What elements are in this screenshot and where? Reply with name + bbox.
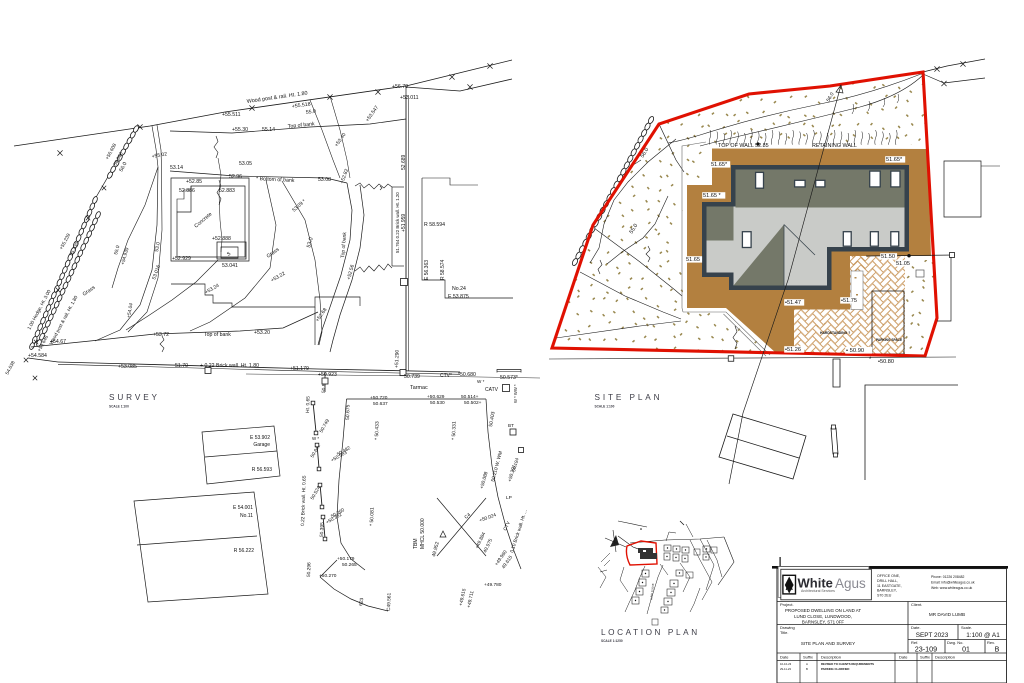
- svg-text:E 54.001: E 54.001: [233, 505, 253, 511]
- svg-text:51.50: 51.50: [881, 254, 895, 260]
- svg-text:+49.615: +49.615: [458, 588, 468, 607]
- svg-text:1:100 @ A1: 1:100 @ A1: [966, 632, 1000, 639]
- svg-text:55.14: 55.14: [262, 127, 275, 133]
- svg-text:52.886: 52.886: [179, 188, 195, 194]
- svg-text:•51.26: •51.26: [785, 347, 801, 353]
- svg-text:MR DAVID LUMB: MR DAVID LUMB: [929, 612, 965, 617]
- svg-text:* 50.081: * 50.081: [369, 507, 376, 526]
- svg-text:+52.56: +52.56: [346, 264, 356, 281]
- svg-text:CTV*: CTV*: [440, 373, 452, 379]
- svg-text:55.0: 55.0: [113, 245, 121, 256]
- svg-text:E 56.363: E 56.363: [424, 260, 430, 280]
- svg-text:11 EASTGATE,: 11 EASTGATE,: [877, 584, 902, 588]
- svg-text:51.65: 51.65: [686, 257, 700, 263]
- svg-text:+50.179: +50.179: [337, 556, 355, 562]
- svg-text:R 58.574: R 58.574: [440, 259, 446, 280]
- svg-text:LOCATION PLAN: LOCATION PLAN: [601, 628, 700, 637]
- svg-text:PARKING SPACE: PARKING SPACE: [876, 338, 902, 342]
- svg-text:REVISED TO CLIENTS REQUIREMENT: REVISED TO CLIENTS REQUIREMENTS: [821, 662, 874, 666]
- svg-text:Title.: Title.: [780, 630, 789, 635]
- svg-text:Grass: Grass: [82, 285, 97, 298]
- svg-text:+55.239: +55.239: [58, 232, 72, 251]
- svg-text:51.05: 51.05: [896, 261, 910, 267]
- svg-text:+55.02: +55.02: [151, 151, 167, 160]
- svg-text:RETAINING WALL: RETAINING WALL: [812, 143, 857, 149]
- svg-text:51.764 0.22 Brick wall. Ht. 1.: 51.764 0.22 Brick wall. Ht. 1.20: [395, 192, 400, 253]
- svg-text:Grass: Grass: [266, 247, 281, 260]
- svg-text:Client.: Client.: [911, 602, 922, 607]
- svg-text:53.08: 53.08: [318, 177, 331, 183]
- svg-text:50.265: 50.265: [342, 562, 357, 568]
- svg-text:+52.68: +52.68: [315, 307, 329, 323]
- svg-text:TBM: TBM: [413, 538, 419, 549]
- svg-text:+53.22: +53.22: [270, 271, 287, 284]
- svg-text:52.689: 52.689: [401, 154, 407, 170]
- svg-text:+50.088: +50.088: [479, 471, 489, 490]
- svg-text:Agus: Agus: [835, 576, 866, 591]
- svg-text:R 58.594: R 58.594: [424, 222, 445, 228]
- svg-text:Suffix: Suffix: [803, 655, 813, 660]
- svg-text:Ht. 0.65: Ht. 0.65: [305, 396, 312, 413]
- svg-text:C49.561: C49.561: [386, 592, 393, 611]
- svg-text:Concrete: Concrete: [193, 211, 213, 229]
- svg-text:•51.75: •51.75: [841, 298, 857, 304]
- svg-text:+54.930: +54.930: [120, 247, 130, 266]
- svg-text:E 53.875: E 53.875: [448, 294, 469, 300]
- svg-text:50.194: 50.194: [511, 457, 520, 472]
- svg-text:49.952: 49.952: [431, 541, 441, 558]
- svg-text:•51.47: •51.47: [785, 300, 801, 306]
- svg-text:LUND CLOSE: LUND CLOSE: [649, 583, 655, 600]
- svg-text:CATV: CATV: [485, 387, 499, 393]
- svg-text:LUND CLOSE, LUNDWOOD,: LUND CLOSE, LUNDWOOD,: [794, 614, 852, 619]
- svg-text:B: B: [806, 667, 808, 671]
- svg-text:* 50.331: * 50.331: [451, 421, 458, 440]
- svg-text:Phone: 01226 208482: Phone: 01226 208482: [931, 575, 964, 579]
- svg-text:R 56.222: R 56.222: [234, 548, 255, 554]
- svg-text:53.14: 53.14: [170, 165, 183, 171]
- svg-text:+53.085: +53.085: [118, 364, 137, 370]
- svg-text:SCALE 1:1250: SCALE 1:1250: [601, 639, 623, 643]
- svg-text:+52.82: +52.82: [339, 168, 350, 185]
- svg-text:Date: Date: [780, 655, 789, 660]
- svg-text:55.0: 55.0: [629, 223, 640, 235]
- svg-text:S70 2EU: S70 2EU: [877, 594, 892, 598]
- svg-text:E 53.902: E 53.902: [250, 435, 270, 441]
- svg-text:+ 0.22 Brick wall. Ht. 1.80: + 0.22 Brick wall. Ht. 1.80: [200, 363, 259, 369]
- svg-text:+51.290: +51.290: [394, 349, 401, 368]
- svg-text:50.530: 50.530: [430, 400, 445, 406]
- svg-text:* Bottom of bank: * Bottom of bank: [256, 176, 295, 184]
- svg-text:W *: W *: [312, 436, 319, 441]
- svg-text:+54.67: +54.67: [50, 339, 66, 345]
- svg-text:50.749: 50.749: [319, 418, 332, 434]
- svg-text:50.739: 50.739: [404, 374, 420, 380]
- svg-text:W *: W *: [477, 379, 485, 384]
- svg-text:+53.547: +53.547: [365, 105, 380, 124]
- svg-text:SCALE 1:100: SCALE 1:100: [109, 405, 129, 409]
- svg-text:LP: LP: [506, 495, 512, 501]
- svg-text:50.514+: 50.514+: [461, 394, 479, 400]
- svg-text:+51.179: +51.179: [290, 366, 309, 372]
- svg-text:51.65 *: 51.65 *: [703, 193, 722, 199]
- svg-text:+50.720: +50.720: [370, 395, 388, 401]
- svg-text:50.675: 50.675: [345, 404, 352, 420]
- svg-text:• 50.90: • 50.90: [846, 348, 864, 354]
- svg-text:52.96: 52.96: [229, 174, 242, 180]
- svg-text:53.016: 53.016: [151, 264, 162, 281]
- svg-text:54.638: 54.638: [4, 360, 16, 376]
- svg-text:53.05: 53.05: [239, 161, 252, 167]
- svg-text:0.22 Brick wall.: 0.22 Brick wall.: [303, 429, 305, 430]
- svg-text:56.0: 56.0: [118, 161, 128, 173]
- svg-text:MHCL 50.000: MHCL 50.000: [420, 518, 426, 549]
- svg-text:Project.: Project.: [780, 602, 794, 607]
- svg-text:Scale.: Scale.: [961, 625, 972, 630]
- svg-text:Top of bank: Top of bank: [204, 332, 231, 338]
- svg-text:01: 01: [962, 647, 970, 654]
- svg-text:Web: www.whiteagus.co.uk: Web: www.whiteagus.co.uk: [931, 586, 973, 590]
- svg-text:Top of bank: Top of bank: [288, 121, 316, 130]
- svg-text:Description: Description: [821, 655, 841, 660]
- svg-text:51.65*: 51.65*: [886, 157, 903, 163]
- svg-text:HARDSTANDING ?: HARDSTANDING ?: [820, 331, 850, 335]
- svg-text:+52.85: +52.85: [186, 179, 202, 185]
- svg-text:*: *: [869, 357, 872, 363]
- svg-text:+53.011: +53.011: [400, 95, 419, 101]
- svg-text:Top of bank: Top of bank: [340, 231, 348, 258]
- svg-text:TOP OF WALL 52.85: TOP OF WALL 52.85: [718, 143, 769, 149]
- svg-text:+54.584: +54.584: [28, 353, 47, 359]
- svg-text:Dwg. No.: Dwg. No.: [947, 640, 963, 645]
- svg-text:+54.04: +54.04: [126, 302, 135, 318]
- svg-text:51.65*: 51.65*: [711, 162, 728, 168]
- svg-text:SEPT 2023: SEPT 2023: [916, 632, 949, 639]
- svg-text:B: B: [995, 647, 1000, 654]
- svg-text:* 50.433: * 50.433: [374, 421, 381, 440]
- svg-text:SCALE 1:100: SCALE 1:100: [595, 405, 615, 409]
- svg-text:+50.270: +50.270: [319, 573, 337, 579]
- svg-text:53.041: 53.041: [222, 263, 238, 269]
- svg-text:Description: Description: [935, 655, 955, 660]
- svg-text:50.296: 50.296: [306, 562, 313, 577]
- svg-text:BT: BT: [508, 423, 514, 428]
- svg-text:*50.680: *50.680: [458, 372, 476, 378]
- svg-text:W * WW *: W * WW *: [513, 384, 518, 403]
- svg-text:Tarmac: Tarmac: [410, 385, 428, 391]
- svg-text:50.637: 50.637: [373, 401, 388, 407]
- svg-text:Architectural Services: Architectural Services: [801, 589, 835, 593]
- svg-text:Date: Date: [899, 655, 908, 660]
- svg-text:+53.20: +53.20: [254, 330, 270, 336]
- svg-text:OFFICE ONE,: OFFICE ONE,: [877, 574, 900, 578]
- svg-text:+50.629: +50.629: [427, 394, 445, 400]
- svg-text:•50.80: •50.80: [878, 359, 894, 365]
- svg-text:DRILL HALL,: DRILL HALL,: [877, 579, 898, 583]
- svg-text:23-109: 23-109: [915, 645, 937, 654]
- svg-text:50.502+: 50.502+: [464, 400, 482, 406]
- svg-text:+53.24: +53.24: [204, 283, 221, 296]
- svg-text:BARNSLEY,: BARNSLEY,: [877, 589, 897, 593]
- svg-text:SITE PLAN: SITE PLAN: [595, 393, 663, 402]
- svg-text:A: A: [806, 662, 808, 666]
- svg-text:51.70: 51.70: [175, 363, 188, 369]
- svg-text:+55.30: +55.30: [232, 127, 248, 133]
- svg-text:Suffix: Suffix: [920, 655, 930, 660]
- svg-text:+51.959: +51.959: [401, 214, 407, 232]
- svg-text:+49.780: +49.780: [484, 582, 502, 588]
- svg-text:Garage: Garage: [253, 442, 270, 448]
- svg-text:C4: C4: [463, 512, 472, 521]
- svg-text:PARKING CLARIFIED: PARKING CLARIFIED: [821, 667, 849, 671]
- svg-text:Email: info@whiteagus.co.uk: Email: info@whiteagus.co.uk: [931, 580, 975, 584]
- svg-text:+52.929: +52.929: [172, 256, 191, 262]
- svg-text:623: 623: [358, 597, 365, 606]
- svg-text:SITE PLAN AND SURVEY: SITE PLAN AND SURVEY: [801, 641, 855, 646]
- svg-text:Rev.: Rev.: [987, 640, 995, 645]
- svg-text:29-11-23: 29-11-23: [780, 667, 791, 671]
- svg-text:No.11: No.11: [240, 513, 253, 519]
- svg-text:+52.888: +52.888: [212, 236, 231, 242]
- svg-text:+50.024: +50.024: [479, 512, 498, 524]
- svg-text:+50.433: +50.433: [277, 429, 278, 430]
- svg-text:52.883: 52.883: [219, 188, 235, 194]
- svg-text:50.403: 50.403: [488, 411, 497, 427]
- svg-text:R 56.593: R 56.593: [252, 467, 273, 473]
- svg-text:BARNSLEY, S71 0FF: BARNSLEY, S71 0FF: [802, 620, 844, 625]
- svg-text:PROPOSED DWELLING ON LAND AT: PROPOSED DWELLING ON LAND AT: [785, 608, 861, 613]
- svg-text:+49.711: +49.711: [466, 590, 475, 608]
- svg-text:0.22 Brick wall. Ht. 0.65: 0.22 Brick wall. Ht. 0.65: [300, 475, 308, 526]
- svg-text:CTV: CTV: [502, 520, 512, 532]
- svg-text:+53.40: +53.40: [334, 132, 348, 148]
- svg-text:50.573*: 50.573*: [500, 375, 518, 381]
- svg-text:No.24: No.24: [452, 286, 466, 292]
- svg-text:10-10-23: 10-10-23: [780, 662, 792, 666]
- svg-text:+53.72: +53.72: [153, 332, 169, 338]
- svg-text:+55.511: +55.511: [222, 112, 241, 118]
- svg-text:0.10 Brick wall. Ht. ...: 0.10 Brick wall. Ht. ...: [509, 509, 529, 554]
- svg-text:SURVEY: SURVEY: [109, 393, 160, 402]
- svg-text:Date.: Date.: [911, 625, 921, 630]
